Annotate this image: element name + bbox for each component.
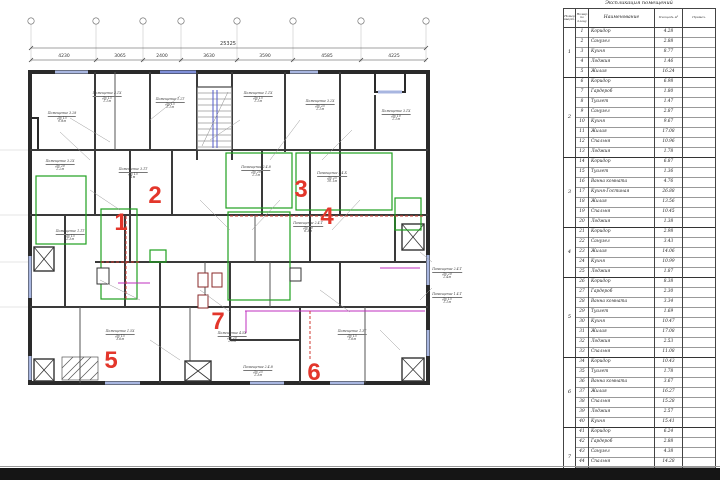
dim-segment-label: 2400 <box>156 54 167 59</box>
cell-plan-number: 15 <box>576 168 589 178</box>
plan-annotation: Помещение 1.1ХДу 151.1м <box>244 92 273 104</box>
cell-note <box>683 348 716 358</box>
cell-area: 17.08 <box>655 328 683 338</box>
cell-plan-number: 38 <box>576 398 589 408</box>
dim-segment-label: 3590 <box>259 54 270 59</box>
table-row: 314Коридор6.87 <box>564 158 716 168</box>
apartment-number-3: 3 <box>294 178 307 202</box>
plan-annotation: Помещение 1.2ТДу 151.1м <box>156 98 185 110</box>
cell-apartment-number: 4 <box>564 228 576 278</box>
dim-total-label: 25325 <box>220 41 236 47</box>
cell-note <box>683 218 716 228</box>
table-row: 22Санузел3.43 <box>564 238 716 248</box>
header-plan-number: Номер по плану <box>576 9 589 28</box>
cell-note <box>683 278 716 288</box>
cell-room-name: Санузел <box>589 448 655 458</box>
cell-note <box>683 128 716 138</box>
plan-annotation: Помещение 2.4.ХДу 2510.1м <box>317 172 347 184</box>
cell-room-name: Коридор <box>589 158 655 168</box>
plan-annotation: Помещение 1.1ТДу 152.3м <box>56 230 85 242</box>
cell-note <box>683 298 716 308</box>
cell-room-name: Лоджия <box>589 408 655 418</box>
cell-plan-number: 41 <box>576 428 589 438</box>
cell-room-name: Коридор <box>589 28 655 38</box>
dimension-lines <box>29 46 428 62</box>
cell-note <box>683 228 716 238</box>
cell-area: 1.36 <box>655 168 683 178</box>
cell-plan-number: 7 <box>576 88 589 98</box>
cell-note <box>683 238 716 248</box>
screenshot-root: 253254230306524003630359045854225 123456… <box>0 0 720 480</box>
cell-plan-number: 40 <box>576 418 589 428</box>
table-row: 12Спальня10.96 <box>564 138 716 148</box>
cell-area: 3.67 <box>655 378 683 388</box>
cell-note <box>683 178 716 188</box>
cell-note <box>683 108 716 118</box>
bottom-divider <box>0 466 720 467</box>
cell-room-name: Лоджия <box>589 218 655 228</box>
cell-area: 6.98 <box>655 78 683 88</box>
cell-room-name: Лоджия <box>589 268 655 278</box>
cell-note <box>683 448 716 458</box>
cell-note <box>683 28 716 38</box>
floor-plan-canvas: 253254230306524003630359045854225 123456… <box>0 0 565 468</box>
cell-area: 15.28 <box>655 398 683 408</box>
cell-area: 1.38 <box>655 218 683 228</box>
cell-area: 6.24 <box>655 428 683 438</box>
cell-room-name: Жилая <box>589 388 655 398</box>
room-explication-table: Номер кварт. Номер по плану Наименование… <box>563 8 716 480</box>
table-row: 16Ванна комната4.76 <box>564 178 716 188</box>
cell-plan-number: 23 <box>576 248 589 258</box>
cell-note <box>683 378 716 388</box>
table-row: 20Лоджия1.38 <box>564 218 716 228</box>
cell-note <box>683 158 716 168</box>
cell-area: 16.27 <box>655 388 683 398</box>
plan-annotation: Помещение 1.4.ТДу 151.1м <box>432 293 462 305</box>
dim-segment-label: 4230 <box>58 54 69 59</box>
cell-plan-number: 11 <box>576 128 589 138</box>
cell-plan-number: 39 <box>576 408 589 418</box>
plan-annotation: Помещение 3.1ХДу 151.1м <box>93 92 122 104</box>
cell-plan-number: 28 <box>576 298 589 308</box>
table-row: 13Лоджия1.78 <box>564 148 716 158</box>
cell-plan-number: 24 <box>576 258 589 268</box>
cell-area: 1.69 <box>655 308 683 318</box>
cell-room-name: Коридор <box>589 358 655 368</box>
table-row: 43Санузел4.38 <box>564 448 716 458</box>
cell-room-name: Туалет <box>589 168 655 178</box>
cell-area: 14.06 <box>655 248 683 258</box>
cell-note <box>683 438 716 448</box>
cell-area: 2.98 <box>655 228 683 238</box>
table-row: 4Лоджия1.46 <box>564 58 716 68</box>
plan-annotation: Помещение 4.5ХДу 202.1м <box>218 332 247 344</box>
cell-note <box>683 288 716 298</box>
cell-room-name: Спальня <box>589 348 655 358</box>
apartment-number-6: 6 <box>307 361 320 385</box>
cell-note <box>683 48 716 58</box>
cell-room-name: Гардероб <box>589 88 655 98</box>
cell-apartment-number: 1 <box>564 28 576 78</box>
cell-plan-number: 1 <box>576 28 589 38</box>
plan-annotation: Помещение 3.2ХДу 202.2м <box>46 160 75 172</box>
bottom-bar <box>0 468 720 480</box>
cell-room-name: Коридор <box>589 228 655 238</box>
table-row: 8Туалет1.47 <box>564 98 716 108</box>
table-row: 26Коридор6.98 <box>564 78 716 88</box>
cell-area: 2.88 <box>655 38 683 48</box>
dim-segment-label: 4585 <box>321 54 332 59</box>
cell-area: 4.38 <box>655 448 683 458</box>
cell-room-name: Гардероб <box>589 288 655 298</box>
table-row: 25Лоджия1.87 <box>564 268 716 278</box>
cell-note <box>683 408 716 418</box>
cell-plan-number: 17 <box>576 188 589 198</box>
plan-annotation: Помещение 1.5ХДу 153.6м <box>106 330 135 342</box>
cell-note <box>683 388 716 398</box>
table-row: 30Кухня10.47 <box>564 318 716 328</box>
apartment-number-5: 5 <box>104 349 117 373</box>
cell-room-name: Санузел <box>589 238 655 248</box>
cell-room-name: Туалет <box>589 98 655 108</box>
cell-area: 2.87 <box>655 108 683 118</box>
cell-area: 1.78 <box>655 368 683 378</box>
cell-plan-number: 34 <box>576 358 589 368</box>
cell-note <box>683 308 716 318</box>
cell-area: 1.47 <box>655 98 683 108</box>
cell-area: 2.53 <box>655 338 683 348</box>
staircase <box>197 87 232 150</box>
table-row: 526Коридор8.38 <box>564 278 716 288</box>
table-row: 2Санузел2.88 <box>564 38 716 48</box>
table-row: 36Ванна комната3.67 <box>564 378 716 388</box>
cell-plan-number: 16 <box>576 178 589 188</box>
cell-plan-number: 21 <box>576 228 589 238</box>
cell-room-name: Туалет <box>589 308 655 318</box>
cell-plan-number: 9 <box>576 108 589 118</box>
cell-plan-number: 32 <box>576 338 589 348</box>
plan-annotation: Помещение 3.2ХДу 252.1м <box>306 100 335 112</box>
cell-room-name: Лоджия <box>589 148 655 158</box>
cell-area: 13.56 <box>655 198 683 208</box>
cell-note <box>683 318 716 328</box>
cell-note <box>683 328 716 338</box>
grid-extension-marks <box>0 150 28 307</box>
cell-note <box>683 138 716 148</box>
table-row: 29Туалет1.69 <box>564 308 716 318</box>
table-body: 11Коридор4.282Санузел2.883Кухня8.774Лодж… <box>564 28 716 480</box>
cell-plan-number: 18 <box>576 198 589 208</box>
header-apartment-number: Номер кварт. <box>564 9 576 28</box>
cell-room-name: Кухня <box>589 258 655 268</box>
cell-room-name: Жилая <box>589 248 655 258</box>
table-row: 40Кухня15.41 <box>564 418 716 428</box>
cell-room-name: Ванна комната <box>589 178 655 188</box>
plan-annotation: Помещение 3.1ТДу 151м <box>119 168 148 180</box>
cell-area: 1.80 <box>655 88 683 98</box>
cell-plan-number: 27 <box>576 288 589 298</box>
cell-plan-number: 3 <box>576 48 589 58</box>
header-note: Примеч. <box>683 9 716 28</box>
table-row: 421Коридор2.98 <box>564 228 716 238</box>
cell-note <box>683 188 716 198</box>
cell-apartment-number: 2 <box>564 78 576 158</box>
cell-room-name: Кухня-Гостиная <box>589 188 655 198</box>
cell-plan-number: 10 <box>576 118 589 128</box>
cell-area: 8.38 <box>655 278 683 288</box>
cell-area: 6.87 <box>655 158 683 168</box>
grid-axis-bubbles <box>28 18 429 62</box>
cell-area: 1.78 <box>655 148 683 158</box>
table-row: 11Жилая17.08 <box>564 128 716 138</box>
table-row: 32Лоджия2.53 <box>564 338 716 348</box>
cell-note <box>683 248 716 258</box>
cell-note <box>683 58 716 68</box>
cell-area: 15.41 <box>655 418 683 428</box>
cell-room-name: Ванна комната <box>589 378 655 388</box>
cell-room-name: Туалет <box>589 368 655 378</box>
cell-plan-number: 30 <box>576 318 589 328</box>
cell-note <box>683 168 716 178</box>
cell-area: 4.28 <box>655 28 683 38</box>
cell-plan-number: 13 <box>576 148 589 158</box>
cell-area: 2.30 <box>655 288 683 298</box>
floor-plan-drawing <box>0 0 565 468</box>
cell-room-name: Спальня <box>589 398 655 408</box>
cell-plan-number: 26 <box>576 278 589 288</box>
cell-note <box>683 398 716 408</box>
table-row: 23Жилая14.06 <box>564 248 716 258</box>
plan-annotation: Помещение 2.4.ТДу 206.3м <box>293 222 323 234</box>
plan-annotation: Помещение 3.28Ду 150.8м <box>48 112 76 124</box>
cell-room-name: Жилая <box>589 68 655 78</box>
cell-room-name: Кухня <box>589 118 655 128</box>
cell-note <box>683 88 716 98</box>
table-row: 42Гардероб2.88 <box>564 438 716 448</box>
cell-room-name: Кухня <box>589 418 655 428</box>
header-area: Площадь м² <box>655 9 683 28</box>
dim-segment-label: 3065 <box>114 54 125 59</box>
cell-apartment-number: 5 <box>564 278 576 358</box>
table-row: 24Кухня10.99 <box>564 258 716 268</box>
cell-area: 2.88 <box>655 438 683 448</box>
table-row: 33Спальня11.08 <box>564 348 716 358</box>
table-row: 27Гардероб2.30 <box>564 288 716 298</box>
cell-area: 8.77 <box>655 48 683 58</box>
table-row: 5Жилая16.24 <box>564 68 716 78</box>
cell-area: 10.96 <box>655 138 683 148</box>
cell-room-name: Коридор <box>589 278 655 288</box>
cell-plan-number: 4 <box>576 58 589 68</box>
table-row: 31Жилая17.08 <box>564 328 716 338</box>
table-row: 35Туалет1.78 <box>564 368 716 378</box>
table-header-row: Номер кварт. Номер по плану Наименование… <box>564 9 716 28</box>
cell-area: 10.99 <box>655 258 683 268</box>
cell-area: 3.34 <box>655 298 683 308</box>
table-row: 3Кухня8.77 <box>564 48 716 58</box>
cell-plan-number: 22 <box>576 238 589 248</box>
dim-segment-label: 4225 <box>388 54 399 59</box>
apartment-number-2: 2 <box>148 184 161 208</box>
cell-plan-number: 33 <box>576 348 589 358</box>
cell-note <box>683 418 716 428</box>
cell-room-name: Спальня <box>589 208 655 218</box>
cell-note <box>683 268 716 278</box>
apartment-number-1: 1 <box>114 211 127 235</box>
table-row: 17Кухня-Гостиная26.88 <box>564 188 716 198</box>
plan-annotation: Помещение 2.4.ТДу 202.4м <box>432 268 462 280</box>
cell-plan-number: 42 <box>576 438 589 448</box>
cell-plan-number: 19 <box>576 208 589 218</box>
cell-plan-number: 6 <box>576 78 589 88</box>
cell-note <box>683 358 716 368</box>
cell-plan-number: 5 <box>576 68 589 78</box>
cell-note <box>683 68 716 78</box>
table-row: 15Туалет1.36 <box>564 168 716 178</box>
cell-area: 17.08 <box>655 128 683 138</box>
table-title: Экспликация помещений <box>563 0 715 6</box>
cell-area: 4.76 <box>655 178 683 188</box>
table-row: 19Спальня10.45 <box>564 208 716 218</box>
plan-annotation: Помещение 1.3ТДу 151.6м <box>338 330 367 342</box>
header-room-name: Наименование <box>589 9 655 28</box>
cell-apartment-number: 6 <box>564 358 576 428</box>
cell-note <box>683 338 716 348</box>
table-row: 634Коридор10.43 <box>564 358 716 368</box>
cell-room-name: Коридор <box>589 428 655 438</box>
table-row: 37Жилая16.27 <box>564 388 716 398</box>
cell-area: 11.08 <box>655 348 683 358</box>
cell-plan-number: 25 <box>576 268 589 278</box>
table-row: 18Жилая13.56 <box>564 198 716 208</box>
cell-room-name: Кухня <box>589 48 655 58</box>
cell-note <box>683 38 716 48</box>
cell-room-name: Лоджия <box>589 58 655 68</box>
cell-area: 9.67 <box>655 118 683 128</box>
cell-note <box>683 118 716 128</box>
cell-note <box>683 258 716 268</box>
cell-area: 16.24 <box>655 68 683 78</box>
cell-room-name: Санузел <box>589 38 655 48</box>
table-row: 38Спальня15.28 <box>564 398 716 408</box>
cell-room-name: Жилая <box>589 328 655 338</box>
cell-room-name: Спальня <box>589 138 655 148</box>
cell-note <box>683 78 716 88</box>
cell-area: 10.47 <box>655 318 683 328</box>
cell-note <box>683 428 716 438</box>
cell-note <box>683 208 716 218</box>
cell-plan-number: 35 <box>576 368 589 378</box>
cell-room-name: Санузел <box>589 108 655 118</box>
table-row: 39Лоджия2.57 <box>564 408 716 418</box>
cell-room-name: Гардероб <box>589 438 655 448</box>
cell-plan-number: 31 <box>576 328 589 338</box>
cell-area: 10.45 <box>655 208 683 218</box>
cell-plan-number: 12 <box>576 138 589 148</box>
cell-area: 2.57 <box>655 408 683 418</box>
cell-room-name: Лоджия <box>589 338 655 348</box>
cell-area: 26.88 <box>655 188 683 198</box>
plan-annotation: Помещение 2.4.8Ду 202.1м <box>241 166 270 178</box>
cell-room-name: Кухня <box>589 318 655 328</box>
cell-plan-number: 37 <box>576 388 589 398</box>
cell-note <box>683 148 716 158</box>
cell-plan-number: 2 <box>576 38 589 48</box>
cell-plan-number: 36 <box>576 378 589 388</box>
cell-room-name: Жилая <box>589 198 655 208</box>
table-row: 10Кухня9.67 <box>564 118 716 128</box>
cell-area: 1.87 <box>655 268 683 278</box>
cell-room-name: Коридор <box>589 78 655 88</box>
table-row: 28Ванна комната3.34 <box>564 298 716 308</box>
table-row: 11Коридор4.28 <box>564 28 716 38</box>
cell-room-name: Ванна комната <box>589 298 655 308</box>
cell-note <box>683 198 716 208</box>
cell-plan-number: 29 <box>576 308 589 318</box>
dim-segment-label: 3630 <box>203 54 214 59</box>
cell-plan-number: 43 <box>576 448 589 458</box>
cell-plan-number: 14 <box>576 158 589 168</box>
cell-plan-number: 20 <box>576 218 589 228</box>
table-row: 9Санузел2.87 <box>564 108 716 118</box>
cell-area: 3.43 <box>655 238 683 248</box>
cell-area: 1.46 <box>655 58 683 68</box>
table-row: 7Гардероб1.80 <box>564 88 716 98</box>
plan-annotation: Помещение 2.4.8Ду 252.3м <box>243 366 272 378</box>
table-row: 741Коридор6.24 <box>564 428 716 438</box>
plan-annotation: Помещение 3.1ХДу 102.1м <box>382 110 411 122</box>
cell-plan-number: 8 <box>576 98 589 108</box>
cell-area: 10.43 <box>655 358 683 368</box>
cell-room-name: Жилая <box>589 128 655 138</box>
cell-apartment-number: 3 <box>564 158 576 228</box>
cell-note <box>683 368 716 378</box>
cell-note <box>683 98 716 108</box>
